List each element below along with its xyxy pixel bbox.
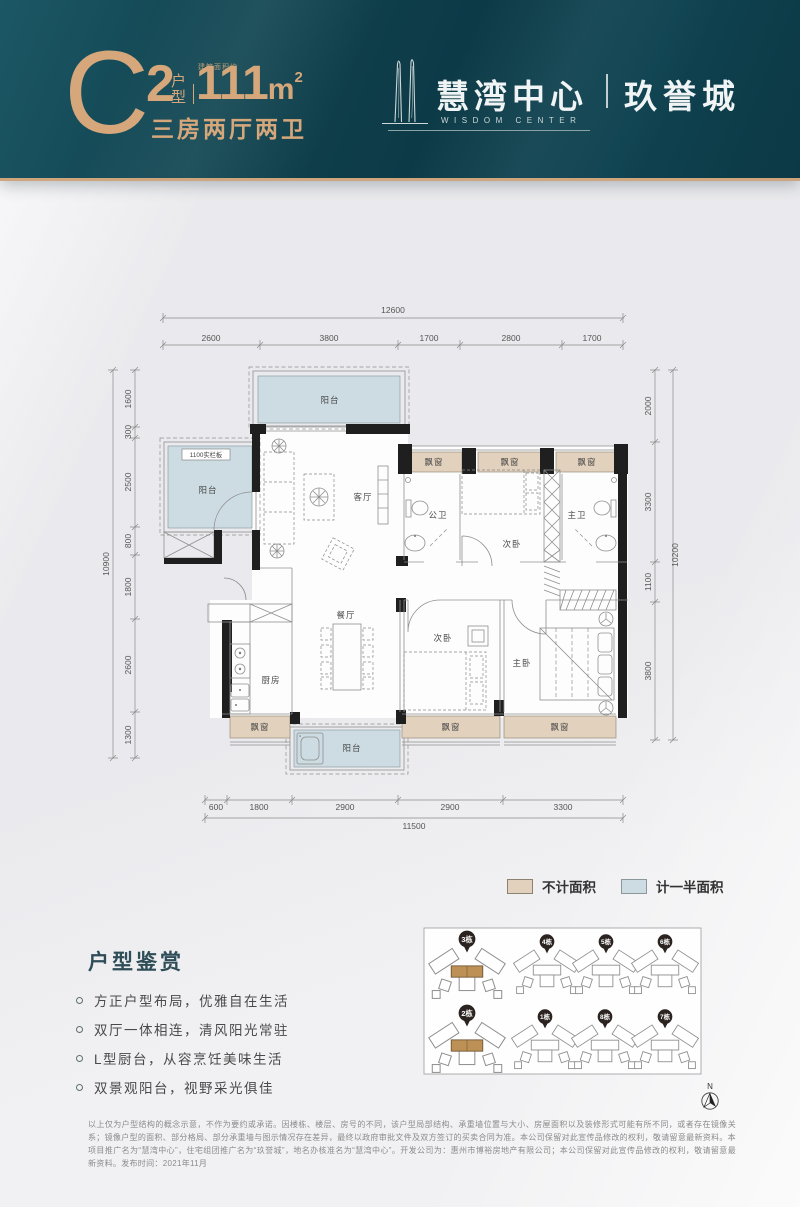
room-label-bedroom: 次卧 <box>433 633 452 643</box>
unit-type-letter: C <box>64 34 149 152</box>
feature-item: 双景观阳台，视野采光俱佳 <box>88 1077 289 1097</box>
dim-bottom-seg: 1800 <box>250 802 269 812</box>
dim-right-seg: 3300 <box>643 492 653 511</box>
feature-item: 方正户型布局，优雅自在生活 <box>88 990 289 1010</box>
dim-left-seg: 300 <box>123 425 133 439</box>
dim-top-seg: 1700 <box>583 333 602 343</box>
dim-left-total: 10900 <box>101 552 111 576</box>
feature-item: 双厅一体相连，清风阳光常驻 <box>88 1019 289 1039</box>
area-value: 111m2 <box>196 60 302 108</box>
brand-underline <box>388 130 590 131</box>
room-label-balcony: 阳台 <box>342 743 361 753</box>
feature-text: L型厨台，从容烹饪美味生活 <box>94 1048 283 1068</box>
room-label-bay: 飘窗 <box>550 722 569 732</box>
legend-label-noarea: 不计面积 <box>542 876 596 896</box>
bullet-icon <box>76 997 83 1004</box>
dim-left-seg: 1300 <box>123 725 133 744</box>
dim-right-total: 10200 <box>670 543 680 567</box>
room-label-master: 主卧 <box>512 658 531 668</box>
dim-bottom-seg: 3300 <box>554 802 573 812</box>
dim-left-seg: 2500 <box>123 472 133 491</box>
brand-separator <box>606 74 608 108</box>
balcony-left: 1100实栏板 阳台 <box>160 438 260 535</box>
north-label: N <box>707 1082 713 1091</box>
features-title: 户型鉴赏 <box>88 946 289 976</box>
feature-text: 双景观阳台，视野采光俱佳 <box>94 1077 274 1097</box>
room-label-bath-master: 主卫 <box>567 510 586 520</box>
header-divider-line <box>193 84 194 104</box>
disclaimer-text: 以上仅为户型结构的概念示意，不作为要约或承诺。因楼栋、楼层、房号的不同，该户型局… <box>88 1118 736 1170</box>
room-label-balcony: 阳台 <box>198 485 217 495</box>
dim-left-seg: 1800 <box>123 577 133 596</box>
dim-bottom-seg: 2900 <box>336 802 355 812</box>
room-label-bay: 飘窗 <box>441 722 460 732</box>
legend-swatch-noarea <box>507 879 533 894</box>
dim-top-total: 12600 <box>381 305 405 315</box>
feature-text: 方正户型布局，优雅自在生活 <box>94 990 289 1010</box>
north-compass-icon: N <box>702 1082 718 1109</box>
dim-top-seg: 2800 <box>502 333 521 343</box>
room-label-bay: 飘窗 <box>424 457 443 467</box>
brand-name-en: WISDOM CENTER <box>441 116 581 125</box>
dim-top-seg: 2600 <box>202 333 221 343</box>
area-exponent: 2 <box>294 69 301 86</box>
towers-logo-icon <box>382 56 428 130</box>
feature-text: 双厅一体相连，清风阳光常驻 <box>94 1019 289 1039</box>
unit-label: 户型 <box>171 74 187 106</box>
brand-name-cn: 慧湾中心 <box>436 70 588 118</box>
room-label-bay: 飘窗 <box>500 457 519 467</box>
floorplan-drawing: 12600 2600 3800 1700 2800 1700 10900 160… <box>100 290 760 860</box>
room-label-bath-public: 公卫 <box>428 510 447 520</box>
room-label-bedroom: 次卧 <box>502 539 521 549</box>
building-pin-label: 1栋 <box>540 1012 551 1021</box>
dim-left-seg: 2600 <box>123 655 133 674</box>
room-label-living: 客厅 <box>353 492 372 502</box>
dim-left-seg: 1600 <box>123 389 133 408</box>
feature-item: L型厨台，从容烹饪美味生活 <box>88 1048 289 1068</box>
sub-brand-name: 玖誉城 <box>624 70 741 118</box>
building-pin-label: 3栋 <box>461 935 473 944</box>
dim-right-seg: 1100 <box>643 573 653 592</box>
room-label-kitchen: 厨房 <box>261 675 280 685</box>
dim-bottom-seg: 600 <box>209 802 223 812</box>
area-legend: 不计面积 计一半面积 <box>507 876 724 896</box>
features-section: 户型鉴赏 方正户型布局，优雅自在生活 双厅一体相连，清风阳光常驻 L型厨台，从容… <box>88 946 289 1106</box>
dim-top-seg: 3800 <box>320 333 339 343</box>
area-unit: m <box>268 73 295 106</box>
rail-note-label: 1100实栏板 <box>190 450 223 459</box>
bullet-icon <box>76 1026 83 1033</box>
building-pin-label: 8栋 <box>600 1012 611 1021</box>
room-label-bay: 飘窗 <box>577 457 596 467</box>
room-label-bay: 飘窗 <box>250 722 269 732</box>
building-pin-label: 6栋 <box>660 937 671 946</box>
balcony-top: 阳台 <box>249 367 409 429</box>
bullet-icon <box>76 1084 83 1091</box>
building-pin-label: 2栋 <box>461 1009 473 1018</box>
building-pin-label: 7栋 <box>660 1012 671 1021</box>
building-pin-label: 4栋 <box>542 937 553 946</box>
building-pin-label: 5栋 <box>601 937 612 946</box>
room-label-balcony: 阳台 <box>320 395 339 405</box>
dim-top-seg: 1700 <box>420 333 439 343</box>
bullet-icon <box>76 1055 83 1062</box>
area-number: 111 <box>196 57 268 110</box>
dim-right-seg: 2000 <box>643 396 653 415</box>
siteplan: 3栋 4栋 5栋 6栋 2栋 1栋 8栋 7栋 N <box>420 925 755 1115</box>
dim-right-seg: 3800 <box>643 661 653 680</box>
balcony-bottom: 阳台 <box>286 724 408 774</box>
layout-description: 三房两厅两卫 <box>151 110 307 144</box>
dim-bottom-seg: 2900 <box>441 802 460 812</box>
dim-left-seg: 800 <box>123 534 133 548</box>
legend-label-halfarea: 计一半面积 <box>656 876 724 896</box>
dim-bottom-total: 11500 <box>402 821 425 831</box>
header-banner: C 2 户型 建筑面积约 111m2 三房两厅两卫 慧湾中心 WISDOM CE… <box>0 0 800 181</box>
legend-swatch-halfarea <box>621 879 647 894</box>
room-label-dining: 餐厅 <box>336 610 355 620</box>
